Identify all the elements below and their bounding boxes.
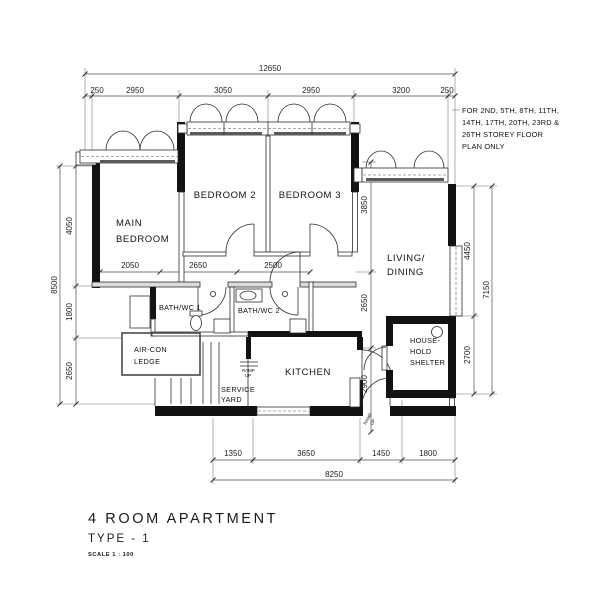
dim-left-seg-2: 2650 — [65, 362, 74, 380]
bath2-sink — [236, 289, 262, 302]
dim-bottom-seg-2: 1450 — [372, 449, 390, 458]
note-line-3: 26TH STOREY FLOOR — [462, 130, 543, 139]
dim-top-seg-3: 2950 — [302, 86, 320, 95]
dim-right-seg-0: 4450 — [463, 242, 472, 260]
bath1-toilet — [190, 311, 202, 331]
title-block: 4 ROOM APARTMENT TYPE - 1 SCALE 1 : 100 — [88, 511, 278, 558]
dim-right-seg-1: 2700 — [463, 346, 472, 364]
dim-top-seg-0: 250 — [90, 86, 104, 95]
service-yard-rack — [171, 342, 219, 404]
dim-left-total: 8500 — [50, 276, 59, 294]
label-bath2: BATH/WC 2 — [238, 306, 280, 315]
kitchen-counter — [350, 378, 360, 407]
label-ramp-yard-2: UP — [245, 373, 251, 378]
label-kitchen: KITCHEN — [285, 367, 331, 378]
label-service-yard-1: SERVICE — [221, 385, 255, 394]
label-shelter-3: SHELTER — [410, 358, 445, 367]
plan-type: TYPE - 1 — [88, 533, 151, 545]
dim-3850: 3850 — [360, 196, 369, 214]
label-main-bedroom-2: BEDROOM — [116, 234, 169, 245]
floor-trap-1 — [210, 291, 215, 296]
label-main-bedroom-1: MAIN — [116, 218, 142, 229]
dim-bottom-total: 8250 — [325, 470, 343, 479]
label-service-yard-2: YARD — [221, 395, 242, 404]
label-bedroom2: BEDROOM 2 — [194, 190, 256, 201]
label-aircon-2: LEDGE — [134, 357, 160, 366]
dim-bottom-seg-3: 1800 — [419, 449, 437, 458]
ramp-step — [240, 362, 258, 366]
shelter-door — [364, 346, 387, 370]
floorplan-drawing: 12650 250 2950 3050 2950 3200 250 8500 4… — [0, 0, 604, 600]
plan-title: 4 ROOM APARTMENT — [88, 511, 278, 527]
aircon-ledge — [122, 333, 200, 375]
bath1-shaft — [130, 296, 150, 328]
dim-2650: 2650 — [360, 294, 369, 312]
dim-top-total: 12650 — [259, 64, 282, 73]
label-shelter-2: HOLD — [410, 347, 431, 356]
dim-mid-0: 2050 — [121, 261, 139, 270]
plan-scale: SCALE 1 : 100 — [88, 552, 134, 558]
label-living-1: LIVING/ — [387, 253, 425, 264]
label-bedroom3: BEDROOM 3 — [279, 190, 341, 201]
label-shelter-1: HOUSE- — [410, 336, 440, 345]
note-line-2: 14TH, 17TH, 20TH, 23RD & — [462, 118, 559, 127]
bath2-basin — [290, 319, 306, 333]
bedroom3-door — [310, 224, 338, 252]
dim-mid-2: 2500 — [264, 261, 282, 270]
floorplan-page: 12650 250 2950 3050 2950 3200 250 8500 4… — [0, 0, 604, 600]
dim-top-seg-2: 3050 — [214, 86, 232, 95]
label-ramp-entrance: RAMP UP — [362, 412, 378, 429]
note-line-4: PLAN ONLY — [462, 142, 505, 151]
dim-bottom-seg-0: 1350 — [224, 449, 242, 458]
dim-mid-1: 2650 — [189, 261, 207, 270]
dim-2900: 2900 — [360, 375, 369, 393]
dim-left-seg-0: 4050 — [65, 217, 74, 235]
label-bath1: BATH/WC 1 — [159, 303, 201, 312]
dim-top-seg-1: 2950 — [126, 86, 144, 95]
dim-top-seg-5: 250 — [440, 86, 454, 95]
label-living-2: DINING — [387, 267, 424, 278]
household-shelter — [386, 316, 448, 398]
dim-top-seg-4: 3200 — [392, 86, 410, 95]
bedroom2-door — [226, 224, 254, 252]
floor-trap-2 — [282, 291, 287, 296]
bath1-basin — [214, 319, 230, 333]
storey-note: FOR 2ND, 5TH, 8TH, 11TH, 14TH, 17TH, 20T… — [462, 106, 559, 151]
dim-left-seg-1: 1800 — [65, 303, 74, 321]
note-line-1: FOR 2ND, 5TH, 8TH, 11TH, — [462, 106, 559, 115]
dim-right-total: 7150 — [482, 281, 491, 299]
label-aircon-1: AIR-CON — [134, 345, 167, 354]
dim-bottom-seg-1: 3650 — [297, 449, 315, 458]
